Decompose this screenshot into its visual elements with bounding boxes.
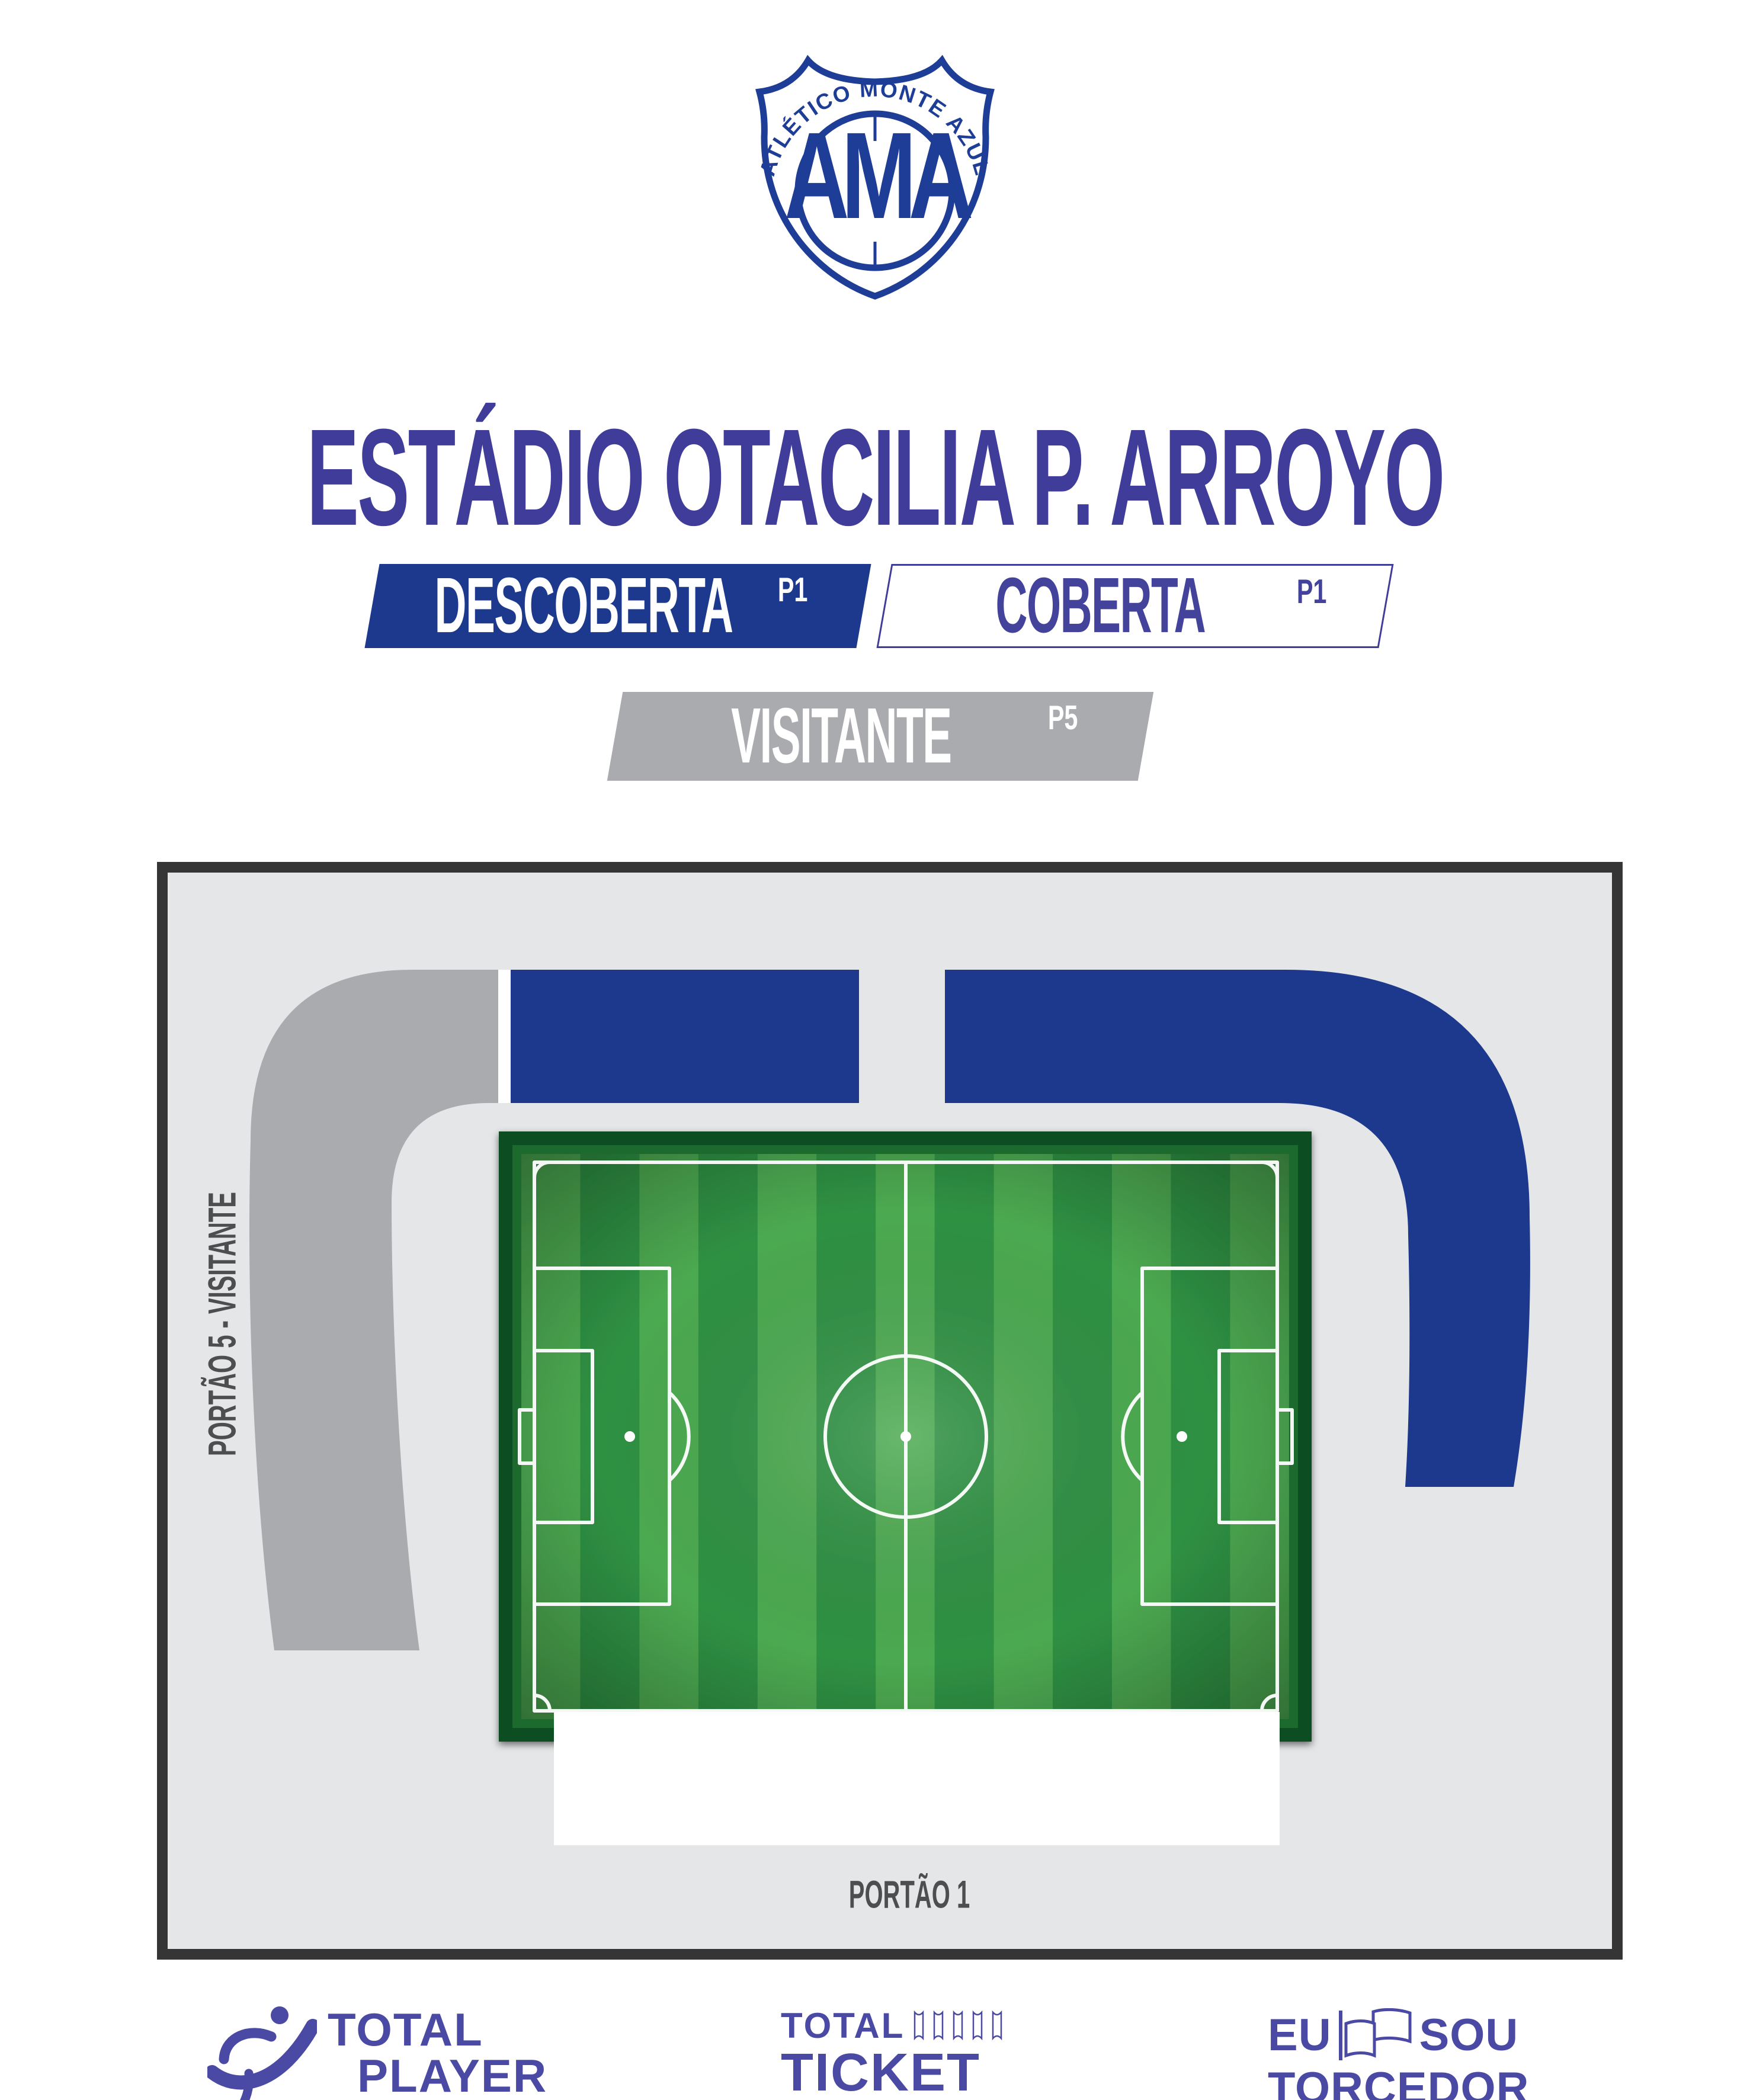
sponsor-word: TORCEDOR [1268, 2066, 1530, 2100]
legend-gate-badge: P1 [1297, 571, 1327, 611]
flag-icon [1338, 2008, 1414, 2063]
legend-label: COBERTA [996, 561, 1275, 651]
sponsor-word: TOTAL [328, 2006, 547, 2053]
sponsor-word: SOU [1419, 2013, 1519, 2058]
gate-1-label: PORTÃO 1 [834, 1877, 985, 1912]
legend-gate-badge: P5 [1048, 697, 1078, 738]
stand-principal[interactable] [554, 1712, 1280, 1845]
sponsor-word: EU [1268, 2013, 1332, 2058]
sponsor-word: TOTAL [781, 2008, 905, 2044]
club-crest-icon: ATLÉTICO MONTE AZUL AMA [736, 36, 1014, 303]
stand-gap [498, 970, 511, 1103]
sponsor-word: PLAYER [357, 2053, 547, 2099]
legend-gate-badge: P1 [778, 569, 808, 610]
stadium-ticket-map-page: ATLÉTICO MONTE AZUL AMA ESTÁDIO OTACILIA… [0, 0, 1750, 2100]
legend-badge-visitante[interactable]: VISITANTE P5 [607, 692, 1153, 781]
club-crest: ATLÉTICO MONTE AZUL AMA [736, 36, 1014, 303]
athlete-icon [207, 2002, 317, 2100]
crest-monogram: AMA [784, 107, 972, 245]
tickets-icon [913, 2009, 1014, 2043]
soccer-field [499, 1131, 1312, 1742]
legend-label: VISITANTE [731, 691, 1030, 781]
page-title: ESTÁDIO OTACILIA P. ARROYO [307, 398, 1444, 557]
sponsor-total-ticket[interactable]: TOTAL TICKET [781, 2008, 1014, 2099]
sponsor-word: TICKET [781, 2046, 1014, 2099]
stand-coberta[interactable] [511, 970, 859, 1103]
gate-5-label: PORTÃO 5 - VISITANTE [205, 1159, 239, 1489]
stadium-map [157, 862, 1623, 1960]
legend-badge-coberta[interactable]: COBERTA P1 [876, 564, 1393, 648]
legend-badge-descoberta[interactable]: DESCOBERTA P1 [364, 564, 871, 648]
sponsor-total-player[interactable]: TOTAL PLAYER [207, 2002, 547, 2100]
legend-label: DESCOBERTA [434, 561, 802, 651]
sponsor-eu-sou-torcedor[interactable]: EU SOU TORCEDOR [1268, 2008, 1530, 2100]
